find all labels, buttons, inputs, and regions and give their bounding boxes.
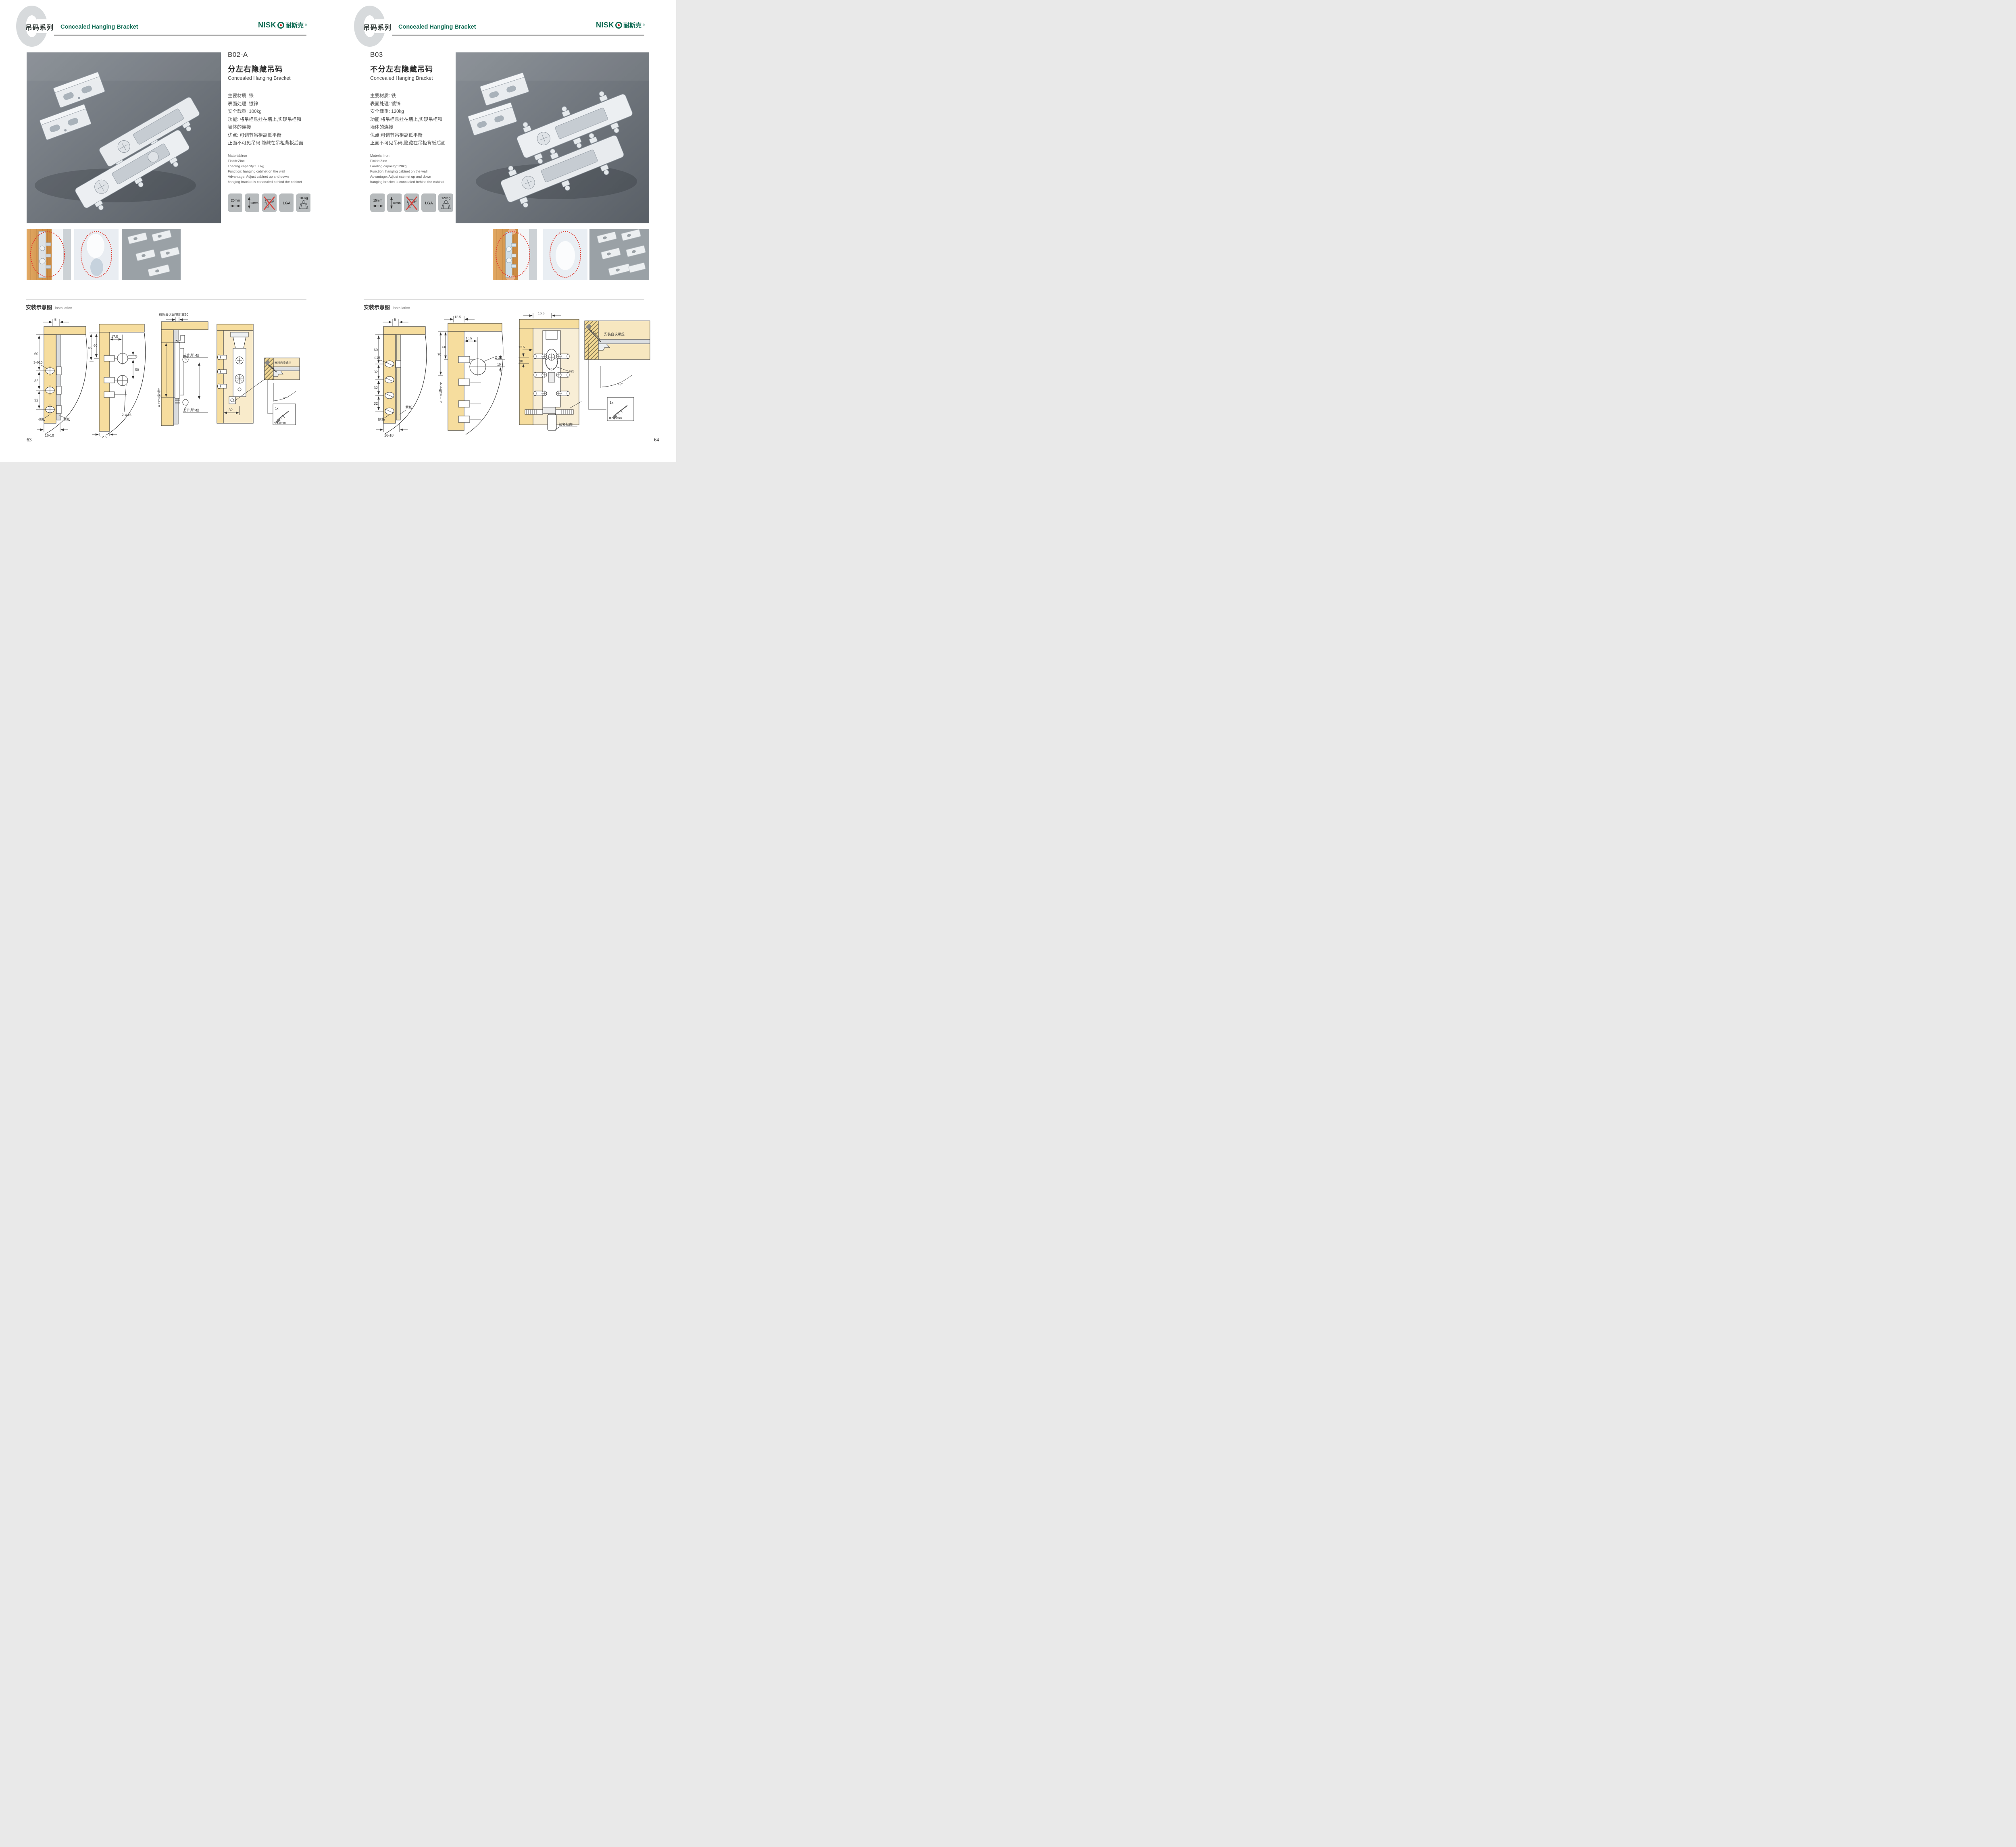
product-name-cn: 不分左右隐藏吊码 [370, 64, 453, 74]
diagram-screw-detail-b03: 安装自攻螺丝 45° 1x Φ3.5mm [583, 318, 652, 436]
brand-logo-text: NISK [596, 21, 614, 29]
brand-logo: NISK 耐斯克 ® [258, 21, 307, 29]
dim-label: 上下调节18 [439, 382, 443, 404]
badge-label: 120Kg [442, 196, 451, 200]
install-title-en: Installation [393, 306, 410, 310]
dim-label: 16-18 [384, 433, 394, 437]
install-title-cn: 安装示意图 [26, 303, 52, 311]
badge-width-icon: 15mm [370, 193, 385, 212]
product-specs-en: Material:Iron Finish:Zinc Loading capaci… [228, 153, 310, 185]
diagram-side-section-b03: 5 60 32 32 32 Φ10 侧板 背板 16-18 [373, 317, 427, 438]
diagram-front-view-b03: 16.5 12.5 10 ø25 锁紧状态 [517, 311, 581, 439]
spec-line: 墙体的连接 [370, 124, 453, 132]
dim-label: 5 [394, 318, 396, 322]
part-label: 锁紧状态 [559, 422, 573, 426]
spec-line: hanging bracket is concealed behind the … [370, 179, 453, 185]
diagram-adjustment-b02a: 前后最大调节距离20 上下调节20 前后调节位 上下调节位 [157, 311, 210, 437]
product-specs-cn: 主要材质: 铁 表面处理: 镀锌 安全载重: 100kg 功能: 将吊柜悬挂在墙… [228, 92, 310, 148]
dim-label: 1x [275, 407, 278, 410]
part-label: 背板 [405, 405, 412, 410]
part-label: 前后调节位 [183, 353, 199, 357]
dim-label: 16.5 [538, 311, 545, 315]
spec-line: 功能: 将吊柜悬挂在墙上,实现吊柜和 [228, 116, 310, 124]
product-photo-b03 [456, 52, 649, 223]
product-info-b02a: B02-A 分左右隐藏吊码 Concealed Hanging Bracket … [228, 51, 310, 212]
page-number: 64 [654, 437, 659, 443]
badge-load-icon: 100kg [296, 193, 310, 212]
spec-line: Finish:Zinc [370, 158, 453, 164]
product-name-cn: 分左右隐藏吊码 [228, 64, 310, 74]
thumb-concealed-view [543, 229, 587, 280]
spec-line: Advantage: Adjust cabinet up and down [370, 174, 453, 179]
header-divider [57, 23, 57, 31]
catalog-spread: 吊码系列 Concealed Hanging Bracket NISK 耐斯克 … [0, 0, 676, 462]
product-specs-cn: 主要材质: 铁 表面处理: 镀锌 安全载重: 120kg 功能:将吊柜悬挂在墙上… [370, 92, 453, 148]
dim-label: Ø 25 [495, 356, 502, 360]
header-rule [392, 35, 644, 35]
dim-label: Φ10 [374, 356, 380, 360]
dim-label: 60 [34, 352, 38, 356]
badge-label: 20mm [231, 199, 240, 202]
brand-logo-cn: 耐斯克 [285, 21, 304, 29]
series-title-en: Concealed Hanging Bracket [60, 24, 138, 30]
badge-no-drill-icon [262, 193, 276, 212]
series-title-cn: 吊码系列 [25, 22, 54, 32]
badge-label: 20mm [250, 202, 258, 205]
badge-lga-icon: LGA [279, 193, 294, 212]
brand-o-ring-icon [277, 22, 284, 29]
dim-label: 12.5 [100, 435, 107, 439]
dim-label: 32 [34, 379, 38, 383]
thumb-concealed-view [74, 229, 119, 280]
spec-line: 主要材质: 铁 [228, 92, 310, 100]
product-info-b03: B03 不分左右隐藏吊码 Concealed Hanging Bracket 主… [370, 51, 453, 212]
part-label: 安装自攻螺丝 [604, 332, 625, 336]
spec-line: 优点: 可调节吊柜高低平衡 [228, 132, 310, 140]
dim-label: 17.5 [111, 335, 118, 339]
thumb-installed-bracket [27, 229, 71, 280]
spec-line: 安全载重: 100kg [228, 108, 310, 116]
dim-label: 70 [437, 352, 442, 356]
badge-height-icon: 18mm [387, 193, 402, 212]
spec-line: Function: hanging cabinet on the wall [370, 169, 453, 174]
install-title-cn: 安装示意图 [364, 303, 390, 311]
part-label: 侧板 [38, 417, 46, 422]
dim-label: 16-18 [45, 433, 54, 437]
diagram-drilling-b03: 12.5 Ø 25 16.5 70 60 10 上下调节18 [437, 314, 508, 436]
spec-line: Loading capacity:100kg [228, 164, 310, 169]
dim-label: 上下调节20 [157, 388, 161, 408]
series-title-cn: 吊码系列 [363, 22, 392, 32]
dim-label: 32 [34, 398, 38, 402]
dim-label: 32 [374, 401, 378, 406]
dim-label: 5 [54, 318, 56, 322]
badge-label: 100kg [299, 196, 308, 200]
diagram-drilling-b02a: 65 60 17.5 5 50 2-Φ15 12.5 [88, 317, 144, 439]
spec-line: Material:Iron [370, 153, 453, 158]
dim-label: 5 [135, 354, 137, 358]
diagram-side-section-b02a: 5 60 32 32 3-Φ10 侧板 背板 16-18 [33, 317, 88, 438]
badge-no-drill-icon [404, 193, 419, 212]
brand-o-ring-icon [615, 22, 622, 29]
badge-label: 18mm [393, 202, 401, 205]
part-label: 安装自攻螺丝 [275, 361, 291, 364]
thumb-installed-bracket [493, 229, 537, 280]
dim-label: 16.5 [466, 337, 472, 340]
install-divider [26, 299, 306, 300]
badge-label: 15mm [373, 199, 383, 202]
dim-label: 12.5 [454, 315, 461, 319]
spec-line: Advantage: Adjust cabinet up and down [228, 174, 310, 179]
feature-badges: 20mm 20mm LGA 100kg [228, 193, 310, 212]
dim-label: 32 [374, 370, 378, 374]
badge-width-icon: 20mm [228, 193, 242, 212]
brand-logo-text: NISK [258, 21, 276, 29]
spec-line: 正面不可见吊码,隐藏在吊柜背板后面 [370, 139, 453, 148]
dim-label: Φ3.5mm [609, 416, 622, 420]
dim-label: 10 [519, 360, 523, 363]
spec-line: 主要材质: 铁 [370, 92, 453, 100]
page-number: 63 [27, 437, 32, 443]
product-code: B03 [370, 51, 453, 59]
install-title: 安装示意图 Installation [26, 303, 72, 311]
dim-label: 10 [497, 363, 501, 366]
brand-logo-cn: 耐斯克 [623, 21, 641, 29]
thumb-wall-plates [589, 229, 649, 280]
part-label: 侧板 [378, 417, 385, 422]
dim-label: 1x [610, 401, 614, 405]
brand-logo: NISK 耐斯克 ® [596, 21, 645, 29]
spec-line: 功能:将吊柜悬挂在墙上,实现吊柜和 [370, 116, 453, 124]
spec-line: 优点:可调节吊柜高低平衡 [370, 132, 453, 140]
product-name-en: Concealed Hanging Bracket [228, 75, 310, 81]
badge-label: LGA [283, 201, 291, 206]
dim-label: 3-Φ10 [33, 361, 43, 364]
dim-label: 45° [618, 383, 623, 386]
badge-lga-icon: LGA [421, 193, 436, 212]
spec-line: 正面不可见吊码,隐藏在吊柜背板后面 [228, 139, 310, 148]
install-title-en: Installation [55, 306, 72, 310]
spec-line: 安全载重: 120kg [370, 108, 453, 116]
product-specs-en: Material:Iron Finish:Zinc Loading capaci… [370, 153, 453, 185]
product-name-en: Concealed Hanging Bracket [370, 75, 453, 81]
spec-line: hanging bracket is concealed behind the … [228, 179, 310, 185]
spec-line: 表面处理: 镀锌 [228, 100, 310, 108]
page-header: 吊码系列 Concealed Hanging Bracket [363, 22, 476, 32]
dim-label: 32 [229, 408, 233, 412]
part-label: 背板 [63, 417, 71, 422]
dim-label: 45° [283, 396, 287, 400]
badge-height-icon: 20mm [245, 193, 259, 212]
feature-badges: 15mm 18mm LGA 120Kg [370, 193, 453, 212]
header-divider [395, 23, 395, 31]
dim-label: 2-Φ15 [122, 413, 131, 417]
spec-line: Material:Iron [228, 153, 310, 158]
dim-label: 60 [374, 348, 378, 352]
header-rule [54, 35, 306, 35]
product-photo-b02a [27, 52, 221, 223]
dim-label: 60 [94, 343, 98, 347]
dim-label: 32 [374, 386, 378, 390]
dim-label: Φ3.5mm [274, 421, 286, 424]
dim-label: 12.5 [519, 345, 525, 349]
part-label: 上下调节位 [183, 408, 199, 412]
spec-line: 表面处理: 镀锌 [370, 100, 453, 108]
dim-label: 65 [88, 346, 92, 350]
dim-label: 60 [442, 345, 446, 349]
product-code: B02-A [228, 51, 310, 59]
dim-label: 50 [135, 368, 139, 372]
diagram-mounted-b02a: 32 安装自攻螺丝 45° 1x Φ3.5mm [217, 318, 300, 439]
spec-line: Loading capacity:120kg [370, 164, 453, 169]
registered-mark: ® [305, 24, 307, 27]
install-divider [364, 299, 644, 300]
series-title-en: Concealed Hanging Bracket [398, 24, 476, 30]
dim-label: 前后最大调节距离20 [159, 312, 188, 316]
spec-line: Finish:Zinc [228, 158, 310, 164]
badge-load-icon: 120Kg [438, 193, 453, 212]
spec-line: 墙体的连接 [228, 124, 310, 132]
dim-label: ø25 [569, 369, 575, 373]
install-title: 安装示意图 Installation [364, 303, 410, 311]
badge-label: LGA [425, 201, 433, 206]
spec-line: Function: hanging cabinet on the wall [228, 169, 310, 174]
registered-mark: ® [643, 24, 645, 27]
page-header: 吊码系列 Concealed Hanging Bracket [25, 22, 138, 32]
thumb-wall-plates [122, 229, 181, 280]
